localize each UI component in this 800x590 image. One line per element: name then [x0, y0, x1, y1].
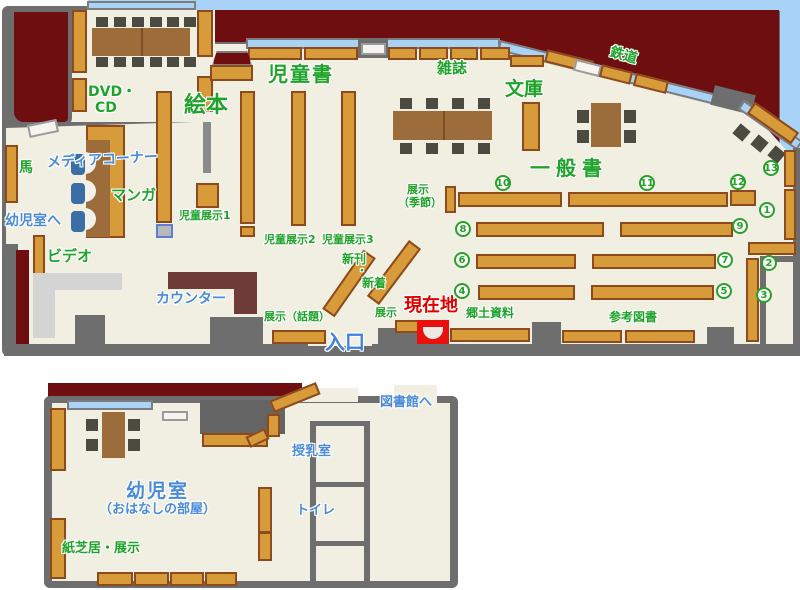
area-label-childrens-books: 児童書 — [268, 63, 334, 85]
bookshelf — [478, 285, 575, 300]
bookshelf — [170, 572, 204, 586]
area-label-infant-room: 幼児室 — [126, 481, 189, 502]
bookshelf — [258, 532, 272, 561]
area-label-topical-exhibit: 展示（話題） — [264, 311, 330, 323]
area-label-bunko: 文庫 — [505, 79, 543, 100]
area-label-kamishibai-exhibit: 紙芝居・展示 — [62, 542, 140, 556]
bookshelf — [591, 285, 714, 300]
area-label-children-exhibit-1: 児童展示1 — [179, 210, 231, 222]
chair — [167, 57, 179, 67]
reading-table — [143, 28, 190, 56]
shelf-number-6: 6 — [454, 252, 470, 268]
chair — [478, 98, 490, 109]
shelf-number-9: 9 — [732, 218, 748, 234]
chair — [96, 17, 108, 27]
bookshelf — [784, 189, 796, 240]
bookshelf — [197, 10, 213, 57]
outside-strip — [16, 250, 29, 345]
pillar — [210, 317, 263, 346]
area-label-manga: マンガ — [111, 187, 156, 204]
area-label-new-books-line1: 新刊 — [342, 253, 366, 266]
chair — [86, 439, 98, 451]
bookshelf — [240, 226, 255, 237]
area-label-to-infant-room: 幼児室へ — [5, 214, 61, 229]
current-location-label: 現在地 — [404, 296, 458, 316]
area-label-picture-books: 絵本 — [184, 94, 228, 118]
display-shelf — [196, 183, 219, 208]
chair — [452, 98, 464, 109]
chair — [150, 17, 162, 27]
magazine-table — [445, 111, 492, 140]
south-wall — [372, 344, 798, 356]
area-label-exhibit: 展示 — [375, 307, 397, 319]
bookshelf — [395, 320, 419, 333]
chair — [132, 17, 144, 27]
bookshelf — [272, 330, 326, 344]
shelf-number-1: 1 — [759, 202, 775, 218]
bookshelf — [240, 91, 255, 224]
bookshelf — [620, 222, 733, 237]
area-label-children-exhibit-3: 児童展示3 — [322, 234, 374, 246]
room-wall — [314, 421, 368, 426]
chair — [184, 57, 196, 67]
bookshelf — [592, 254, 716, 269]
bookshelf — [748, 242, 796, 255]
area-label-local-materials: 郷土資料 — [466, 307, 514, 320]
room-label-nursing-room: 授乳室 — [292, 445, 331, 459]
area-label-dvd-line2: CD — [95, 101, 117, 116]
window-strip — [87, 1, 196, 10]
bookshelf — [205, 572, 237, 586]
bookshelf — [267, 414, 280, 437]
bookshelf — [510, 55, 544, 67]
area-label-seasonal-exhibit-line2: （季節） — [398, 197, 442, 209]
shelf-number-2: 2 — [761, 255, 777, 271]
pillar — [707, 327, 734, 346]
courtyard — [10, 8, 72, 126]
shelf-number-8: 8 — [455, 221, 471, 237]
display-stand — [212, 51, 252, 66]
chair — [624, 130, 636, 143]
room-wall — [314, 541, 366, 546]
bookshelf — [97, 572, 133, 586]
room-wall — [364, 421, 370, 582]
bookshelf — [522, 102, 540, 151]
pillar — [75, 315, 105, 346]
bookshelf — [291, 91, 306, 226]
bench — [203, 122, 211, 173]
shelf-number-4: 4 — [454, 283, 470, 299]
media-chair — [71, 211, 85, 232]
display-case — [162, 411, 188, 421]
magazine-table — [393, 111, 445, 140]
bookshelf — [258, 487, 272, 533]
chair — [114, 57, 126, 67]
bookshelf — [450, 328, 530, 342]
chair — [624, 110, 636, 123]
bookshelf — [156, 91, 172, 223]
area-label-new-books-line2: 新着 — [362, 277, 386, 290]
room-label-toilet: トイレ — [296, 504, 335, 518]
bookshelf — [480, 47, 510, 60]
pillar — [532, 322, 561, 346]
display-case — [361, 43, 386, 55]
shelf-number-7: 7 — [717, 252, 733, 268]
area-label-infant-room-sub: （おはなしの部屋） — [99, 503, 216, 517]
area-label-video: ビデオ — [47, 248, 92, 265]
chair — [577, 110, 589, 123]
chair — [128, 439, 140, 451]
shelf-number-11: 11 — [639, 175, 655, 191]
shelf-number-10: 10 — [495, 175, 511, 191]
chair — [478, 143, 490, 154]
bookshelf — [784, 150, 796, 187]
shelf-number-13: 13 — [763, 160, 779, 176]
area-label-children-exhibit-2: 児童展示2 — [264, 234, 316, 246]
chair — [132, 57, 144, 67]
chair — [184, 17, 196, 27]
entrance-label: 入口 — [325, 331, 365, 353]
bookshelf — [730, 190, 756, 206]
bookshelf — [72, 78, 87, 112]
shelf-number-12: 12 — [730, 174, 746, 190]
bookshelf — [5, 145, 18, 203]
chair — [452, 143, 464, 154]
bookshelf — [562, 330, 622, 343]
chair — [114, 17, 126, 27]
area-label-horse: 馬 — [19, 161, 33, 176]
area-label-to-library: 図書館へ — [380, 396, 432, 410]
bookshelf — [388, 47, 417, 60]
chair — [577, 130, 589, 143]
area-label-general-books: 一般書 — [530, 157, 608, 179]
chair — [128, 419, 140, 431]
chair — [86, 419, 98, 431]
chair — [96, 57, 108, 67]
bookshelf — [210, 65, 253, 81]
room-wall — [314, 482, 366, 487]
window-strip — [67, 400, 153, 410]
bookshelf — [625, 330, 695, 343]
media-chair — [71, 183, 85, 204]
counter-floor — [33, 273, 55, 338]
chair — [167, 17, 179, 27]
reading-table — [92, 28, 143, 56]
bookshelf — [248, 47, 302, 60]
area-label-reference-books: 参考図書 — [609, 311, 657, 324]
bookshelf — [445, 186, 456, 213]
reading-table — [591, 103, 621, 147]
area-label-magazines: 雑誌 — [437, 60, 467, 77]
chair — [426, 143, 438, 154]
area-label-counter: カウンター — [156, 292, 226, 307]
area-label-seasonal-exhibit-line1: 展示 — [407, 184, 429, 196]
shelf-number-5: 5 — [716, 283, 732, 299]
bookshelf — [134, 572, 169, 586]
bookshelf — [304, 47, 358, 60]
chair — [426, 98, 438, 109]
reading-table — [102, 412, 125, 458]
area-label-dvd-line1: DVD・ — [88, 85, 136, 100]
bookshelf — [341, 91, 356, 226]
bookshelf — [72, 10, 87, 73]
bookshelf — [458, 192, 562, 207]
counter-desk — [234, 272, 257, 314]
kiosk-box — [156, 224, 173, 238]
chair — [150, 57, 162, 67]
bookshelf — [476, 254, 576, 269]
library-floor-map: 児童書 絵本 雑誌 文庫 鉄道 一般書 DVD・ CD メディアコーナー マンガ… — [0, 0, 800, 590]
bookshelf — [33, 235, 45, 275]
shelf-number-3: 3 — [756, 287, 772, 303]
bookshelf — [568, 192, 728, 207]
chair — [400, 98, 412, 109]
chair — [400, 143, 412, 154]
bookshelf — [476, 222, 604, 237]
bookshelf — [50, 408, 66, 471]
